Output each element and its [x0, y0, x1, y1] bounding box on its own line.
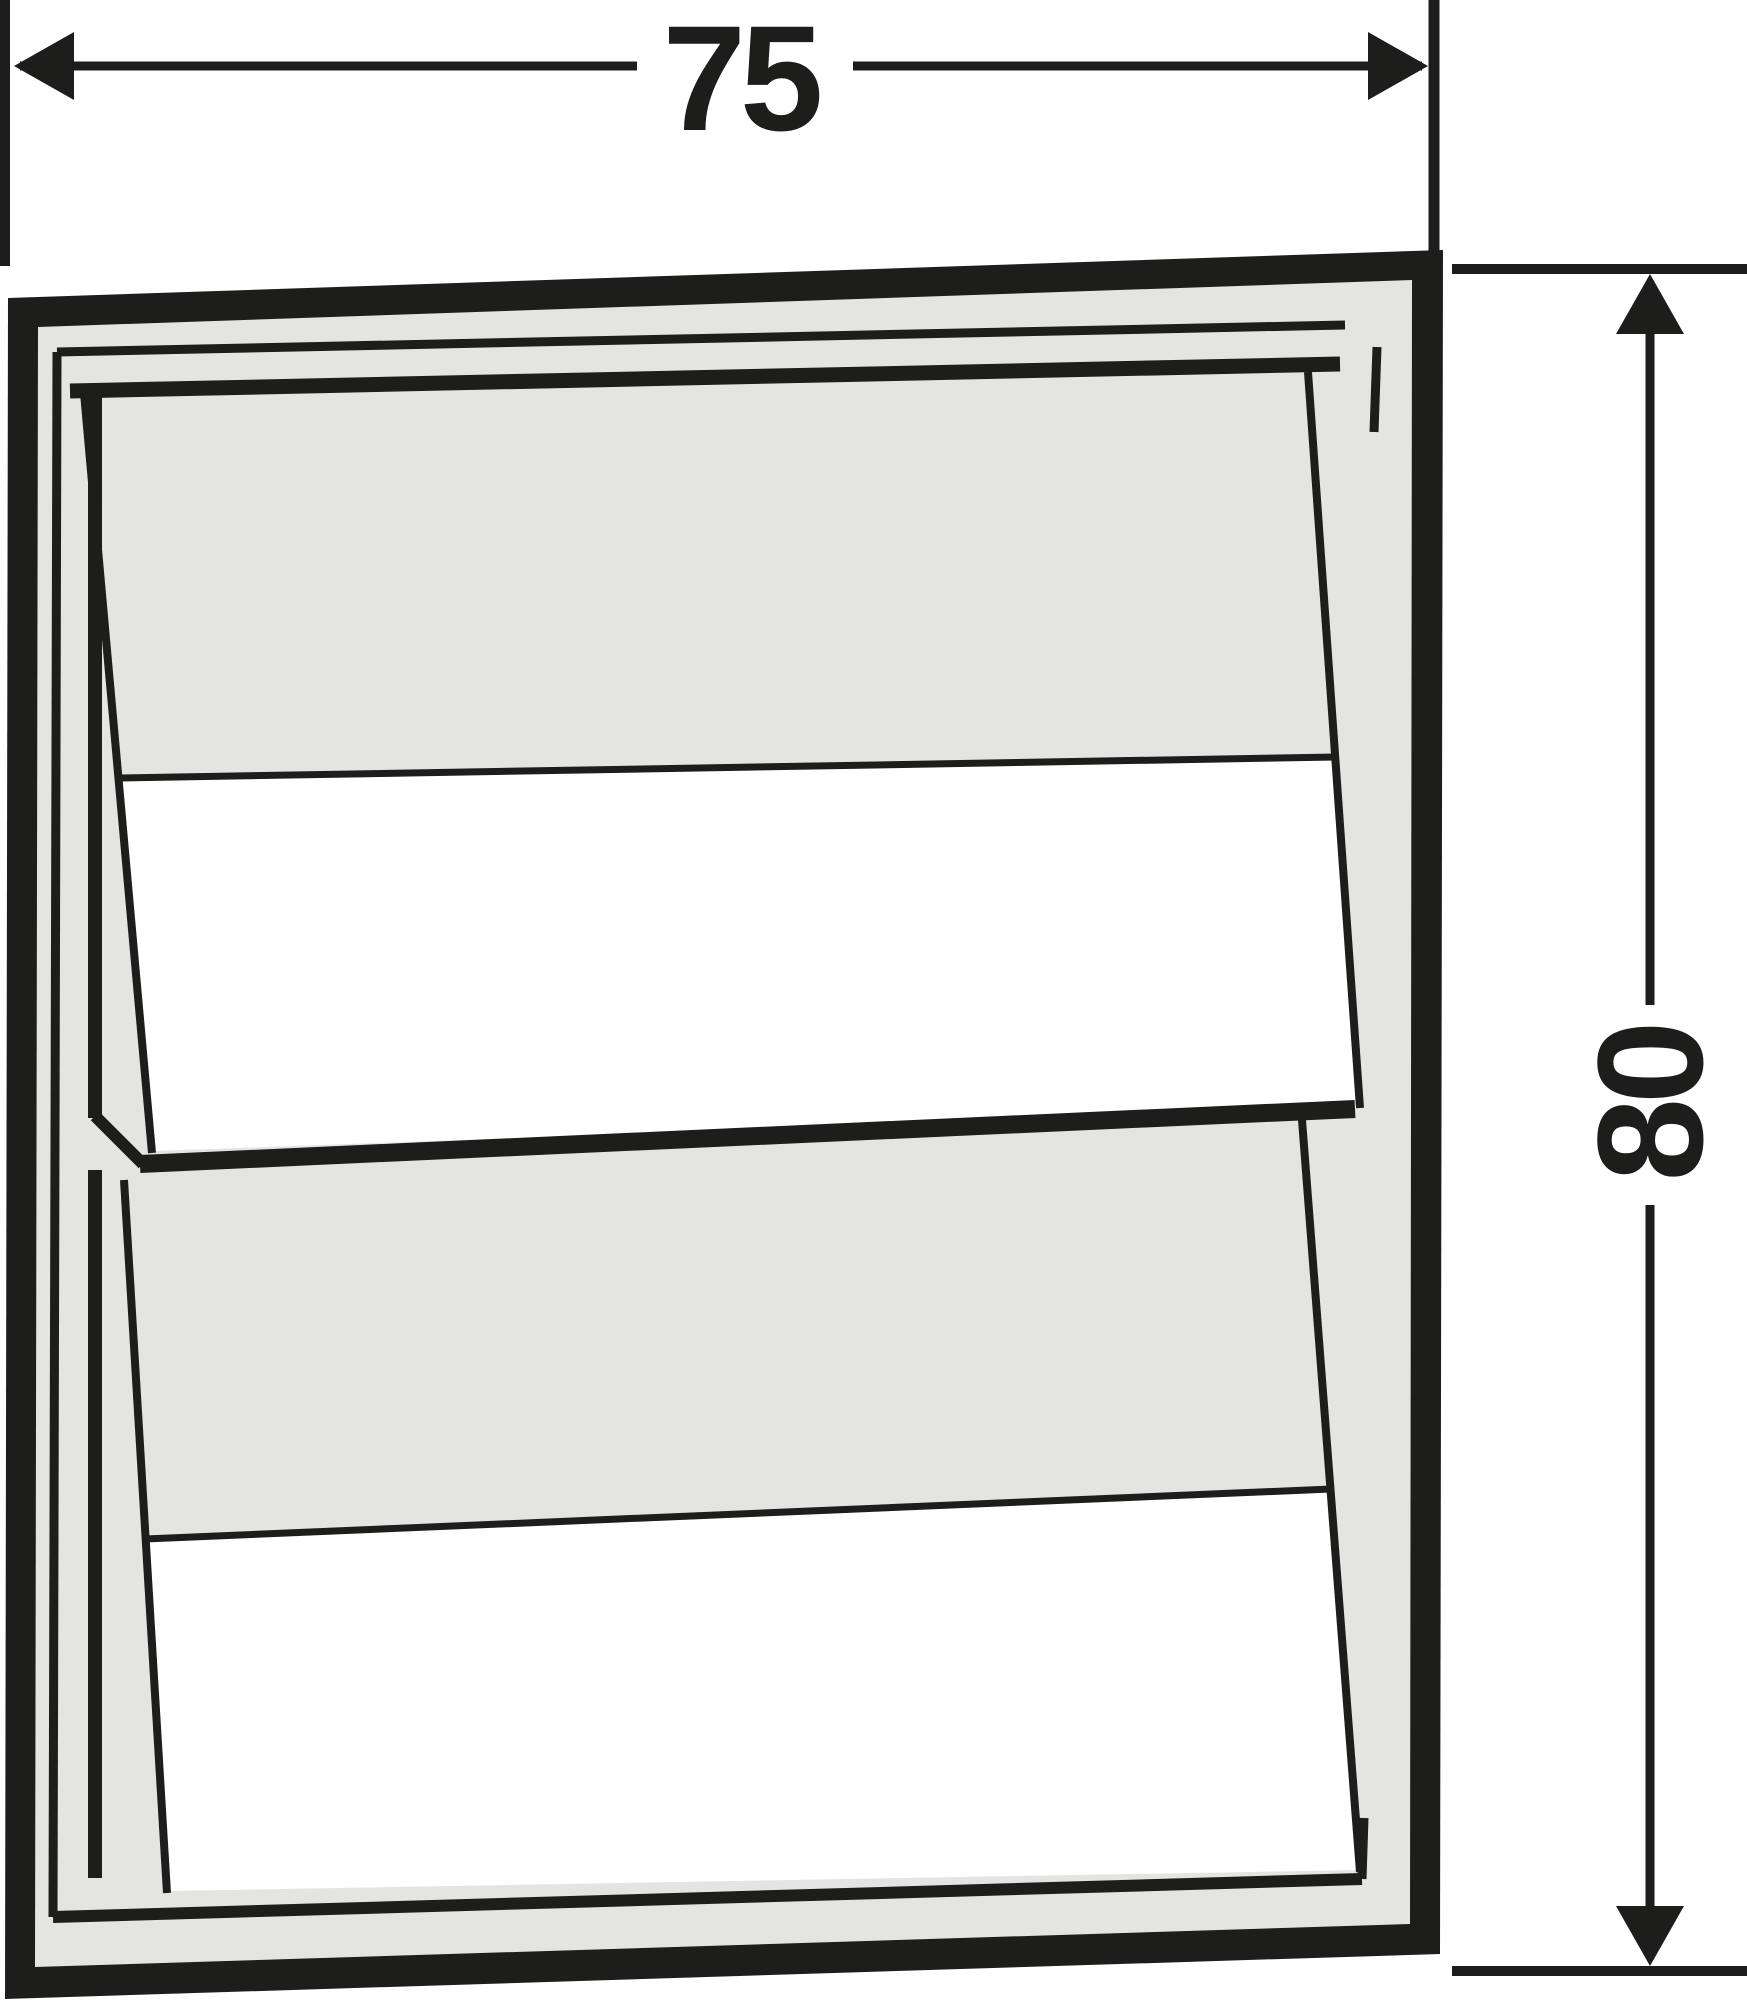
vent-technical-drawing: 75 80: [0, 0, 1747, 2000]
opening-upper: [118, 757, 1360, 1151]
width-dimension-label: 75: [663, 0, 820, 162]
inner-outline-left: [53, 352, 57, 1917]
opening-lower: [145, 1489, 1360, 1891]
inner-outline-right-dash: [1374, 347, 1377, 432]
vent-shutter: [5, 250, 1443, 1999]
height-dimension-label: 80: [1566, 1026, 1734, 1181]
